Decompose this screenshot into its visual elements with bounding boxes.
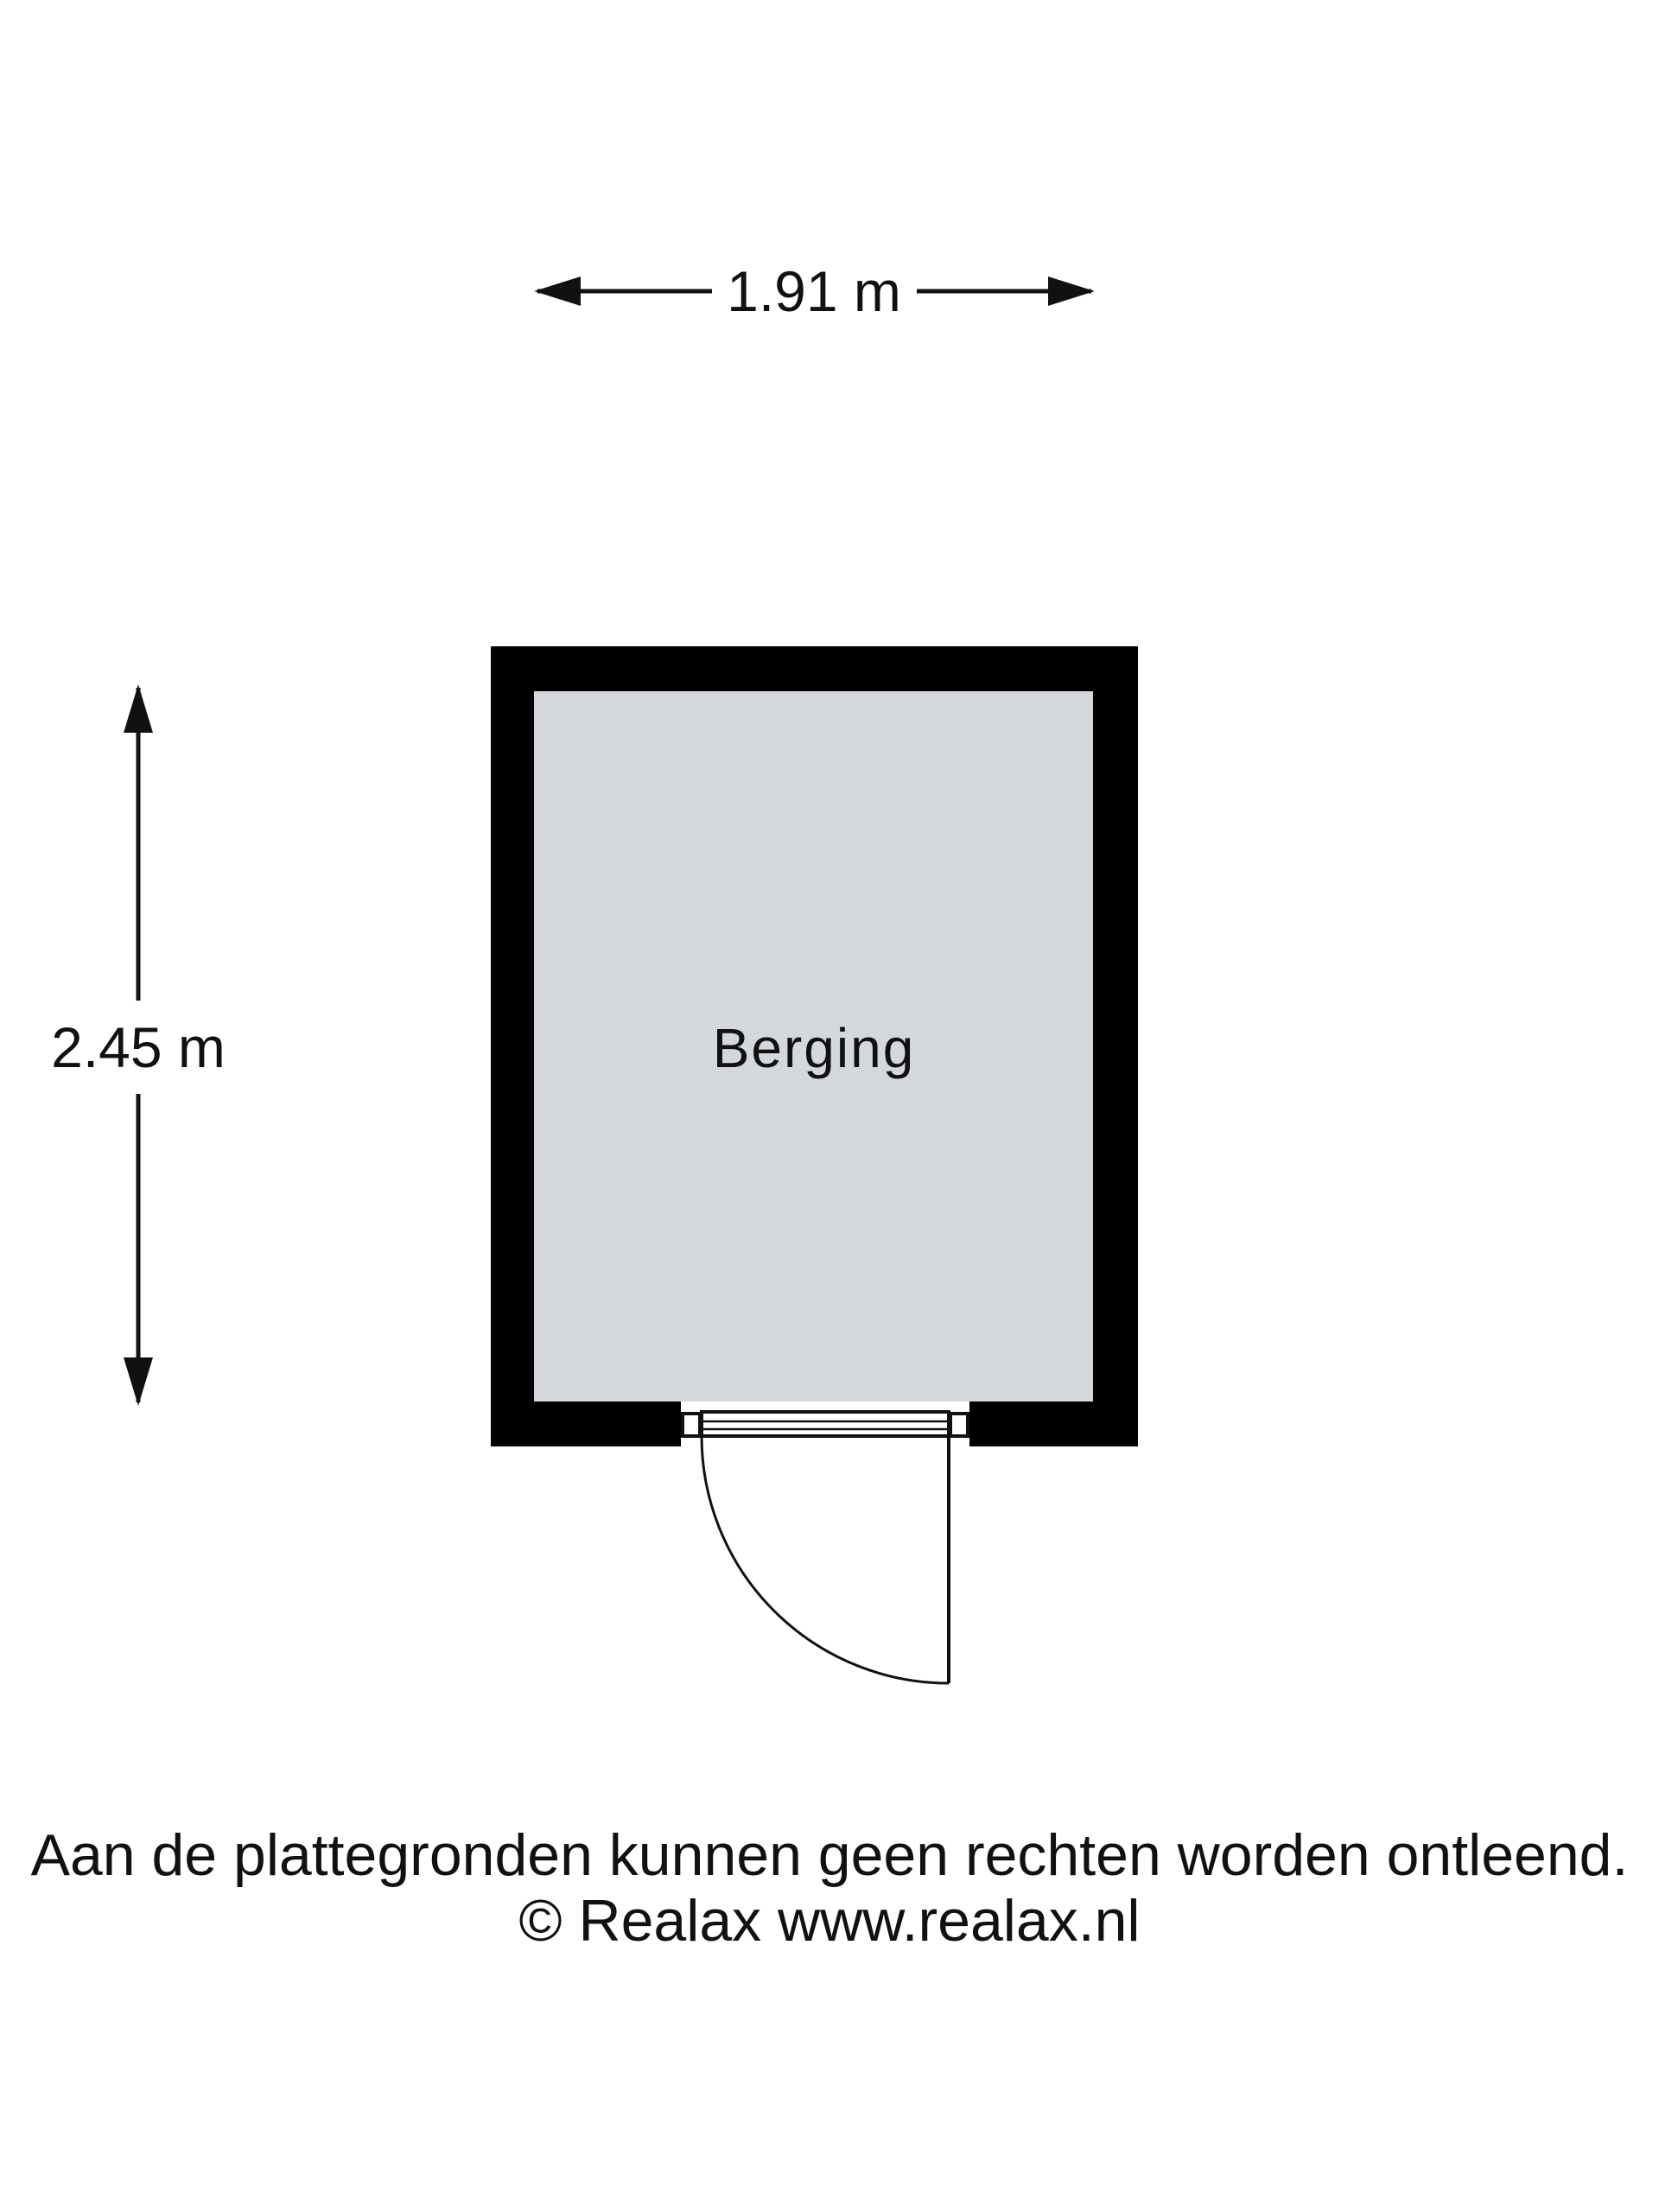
height-dimension-arrowhead-bottom — [124, 1357, 153, 1406]
room-label: Berging — [713, 1016, 916, 1080]
width-dimension-arrowhead-left — [534, 276, 581, 306]
height-dimension-label: 2.45 m — [51, 1014, 226, 1080]
door-jamb-left — [683, 1414, 700, 1436]
footer: Aan de plattegronden kunnen geen rechten… — [0, 1822, 1659, 1954]
room-berging — [491, 646, 1138, 1683]
height-dimension-arrowhead-top — [124, 684, 153, 733]
footer-disclaimer: Aan de plattegronden kunnen geen rechten… — [0, 1822, 1659, 1888]
door-jamb-right — [950, 1414, 968, 1436]
floorplan-canvas: 1.91 m 2.45 m Berging Aan de plattegrond… — [0, 0, 1659, 2212]
door-threshold — [702, 1412, 949, 1436]
footer-credit: © Realax www.realax.nl — [0, 1888, 1659, 1954]
door-swing-arc — [702, 1436, 949, 1683]
door-threshold-frame — [702, 1412, 949, 1436]
width-dimension-arrowhead-right — [1048, 276, 1095, 306]
width-dimension-label: 1.91 m — [727, 258, 901, 324]
